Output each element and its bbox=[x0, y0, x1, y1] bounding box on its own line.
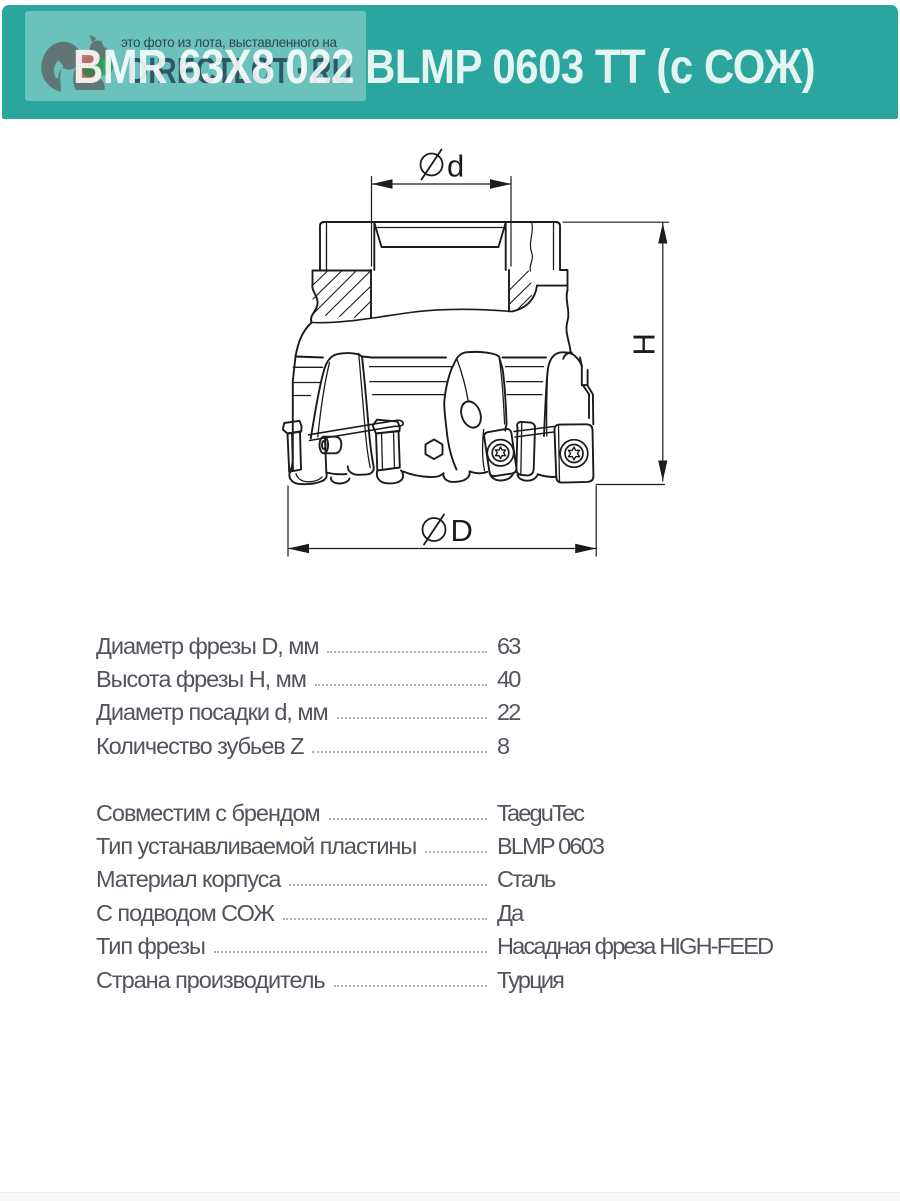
svg-text:d: d bbox=[447, 149, 464, 184]
svg-text:H: H bbox=[627, 333, 662, 355]
svg-text:D: D bbox=[451, 513, 473, 548]
